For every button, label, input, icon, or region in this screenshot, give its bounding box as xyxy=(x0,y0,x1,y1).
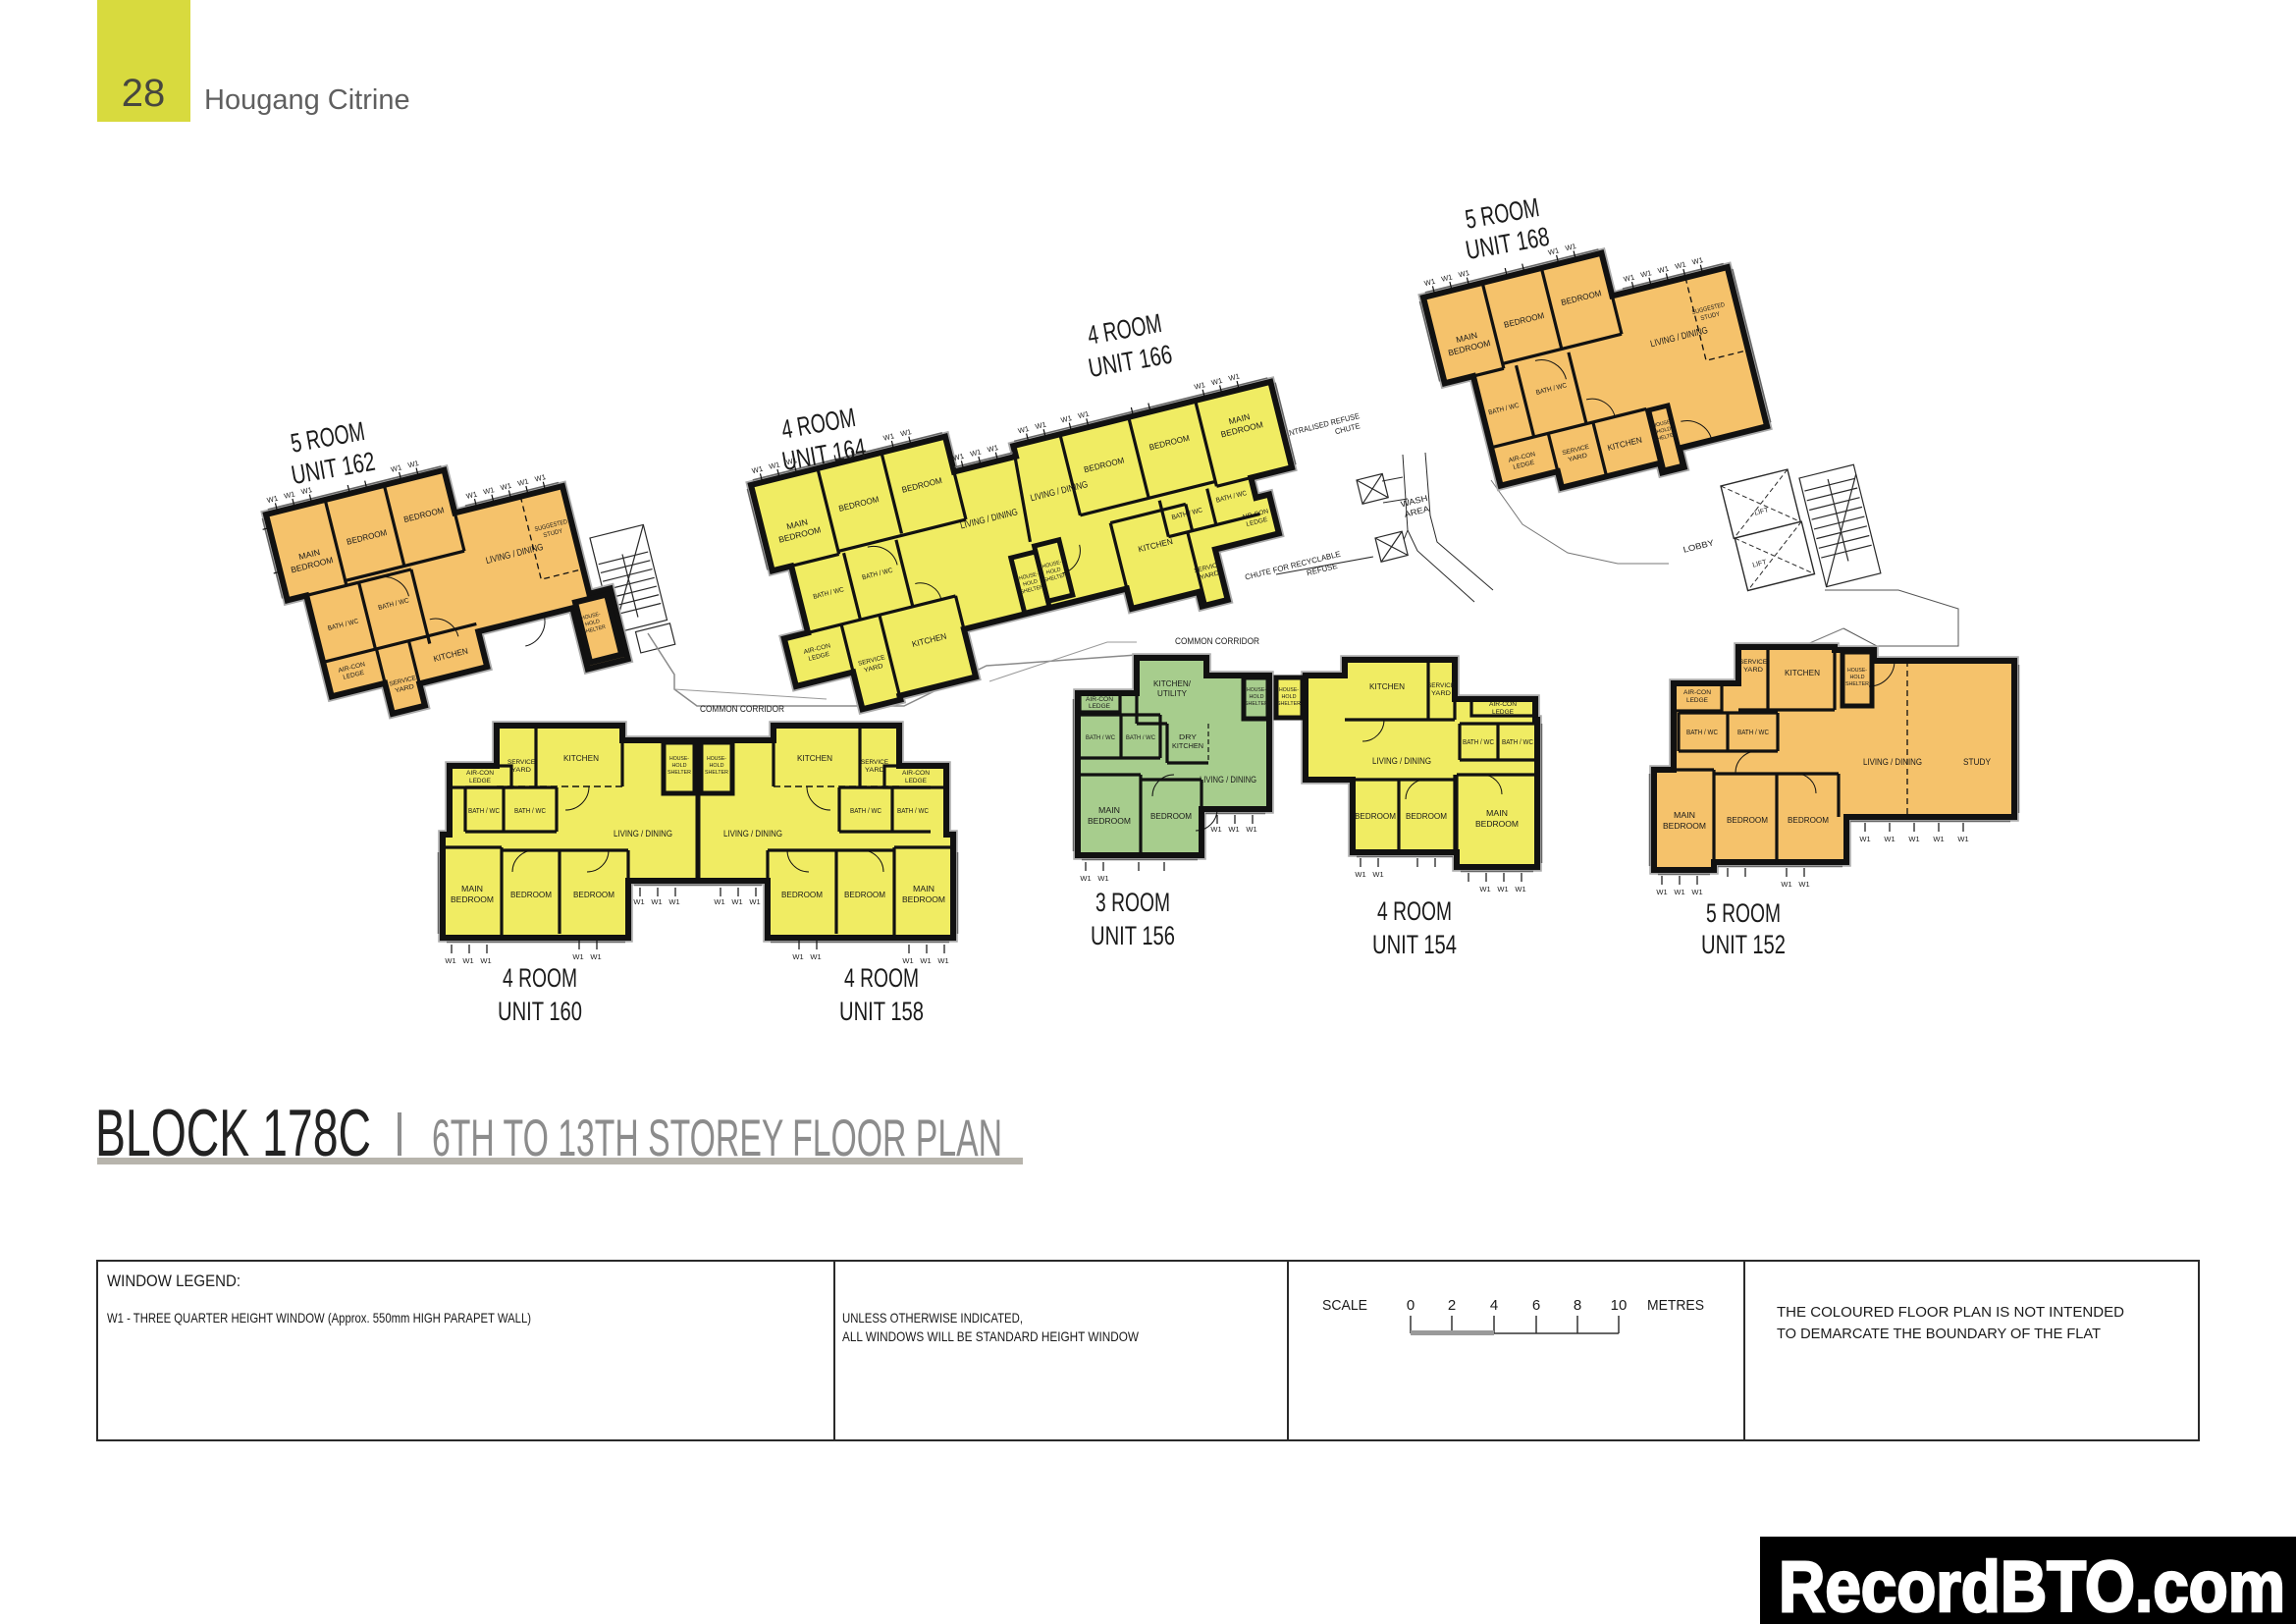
svg-text:BEDROOM: BEDROOM xyxy=(1663,821,1706,831)
svg-text:W1: W1 xyxy=(462,956,473,965)
svg-text:MAIN: MAIN xyxy=(1098,805,1120,815)
svg-text:W1: W1 xyxy=(1933,835,1944,843)
svg-text:W1: W1 xyxy=(1372,870,1383,879)
svg-text:MAIN: MAIN xyxy=(913,884,934,893)
svg-text:8: 8 xyxy=(1574,1297,1581,1314)
svg-text:BEDROOM: BEDROOM xyxy=(510,890,552,899)
svg-text:BEDROOM: BEDROOM xyxy=(573,890,614,899)
svg-text:BEDROOM: BEDROOM xyxy=(1088,816,1131,826)
svg-text:AIR-CON: AIR-CON xyxy=(1489,701,1517,708)
svg-text:W1: W1 xyxy=(714,897,724,906)
svg-text:0: 0 xyxy=(1407,1297,1415,1314)
svg-text:W1 - THREE QUARTER HEIGHT WIND: W1 - THREE QUARTER HEIGHT WINDOW (Approx… xyxy=(107,1310,531,1326)
svg-text:BATH / WC: BATH / WC xyxy=(514,808,546,815)
svg-text:W1: W1 xyxy=(1515,885,1525,893)
svg-text:BATH / WC: BATH / WC xyxy=(1463,739,1494,746)
svg-text:W1: W1 xyxy=(937,956,948,965)
svg-text:BEDROOM: BEDROOM xyxy=(781,890,823,899)
svg-text:W1: W1 xyxy=(1908,835,1919,843)
svg-text:UNIT 152: UNIT 152 xyxy=(1701,930,1786,959)
svg-text:KITCHEN: KITCHEN xyxy=(797,753,832,763)
svg-text:BATH / WC: BATH / WC xyxy=(468,808,500,815)
svg-text:UNLESS OTHERWISE INDICATED,: UNLESS OTHERWISE INDICATED, xyxy=(842,1310,1023,1326)
svg-text:YARD: YARD xyxy=(1431,690,1451,697)
svg-text:METRES: METRES xyxy=(1647,1297,1704,1314)
svg-text:W1: W1 xyxy=(731,897,742,906)
svg-text:SCALE: SCALE xyxy=(1322,1297,1367,1314)
svg-text:BEDROOM: BEDROOM xyxy=(1150,811,1192,821)
svg-text:LIVING / DINING: LIVING / DINING xyxy=(614,829,672,839)
svg-text:W1: W1 xyxy=(480,956,491,965)
svg-text:KITCHEN: KITCHEN xyxy=(1369,681,1405,691)
svg-text:RecordBTO.com: RecordBTO.com xyxy=(1779,1547,2285,1624)
svg-text:W1: W1 xyxy=(1656,888,1667,896)
svg-text:6: 6 xyxy=(1532,1297,1540,1314)
svg-text:UNIT 154: UNIT 154 xyxy=(1372,930,1457,959)
svg-text:W1: W1 xyxy=(810,952,821,961)
svg-text:LEDGE: LEDGE xyxy=(1089,704,1110,710)
svg-text:AIR-CON: AIR-CON xyxy=(466,770,494,777)
svg-text:LIVING / DINING: LIVING / DINING xyxy=(1372,756,1431,767)
svg-text:UTILITY: UTILITY xyxy=(1157,689,1188,698)
svg-text:LIVING / DINING: LIVING / DINING xyxy=(1863,757,1922,768)
svg-text:SHELTER: SHELTER xyxy=(1845,681,1869,687)
svg-text:Hougang Citrine: Hougang Citrine xyxy=(204,84,410,116)
svg-text:W1: W1 xyxy=(1497,885,1508,893)
svg-text:HOUSE-: HOUSE- xyxy=(1279,687,1299,693)
svg-text:BEDROOM: BEDROOM xyxy=(902,894,945,904)
svg-text:BEDROOM: BEDROOM xyxy=(844,890,885,899)
svg-text:LEDGE: LEDGE xyxy=(1492,709,1515,716)
svg-text:KITCHEN: KITCHEN xyxy=(1172,743,1203,750)
svg-text:AIR-CON: AIR-CON xyxy=(1683,689,1711,696)
svg-text:KITCHEN: KITCHEN xyxy=(563,753,599,763)
svg-text:SHELTER: SHELTER xyxy=(1277,701,1301,707)
svg-text:KITCHEN/: KITCHEN/ xyxy=(1153,679,1192,688)
svg-text:BEDROOM: BEDROOM xyxy=(1355,811,1396,821)
svg-text:YARD: YARD xyxy=(511,767,531,774)
svg-text:W1: W1 xyxy=(1884,835,1895,843)
svg-text:HOLD: HOLD xyxy=(1282,694,1297,700)
svg-text:BEDROOM: BEDROOM xyxy=(1727,815,1768,825)
svg-text:W1: W1 xyxy=(1674,888,1684,896)
svg-text:W1: W1 xyxy=(445,956,455,965)
svg-text:UNIT 158: UNIT 158 xyxy=(839,997,924,1026)
svg-text:BATH / WC: BATH / WC xyxy=(1686,730,1718,736)
svg-text:W1: W1 xyxy=(1228,825,1239,834)
svg-text:W1: W1 xyxy=(792,952,803,961)
svg-text:TO DEMARCATE THE BOUNDARY OF T: TO DEMARCATE THE BOUNDARY OF THE FLAT xyxy=(1777,1326,2101,1342)
svg-text:4: 4 xyxy=(1490,1297,1498,1314)
svg-text:SHELTER: SHELTER xyxy=(705,770,728,776)
svg-text:ALL WINDOWS WILL BE STANDARD H: ALL WINDOWS WILL BE STANDARD HEIGHT WIND… xyxy=(842,1328,1140,1344)
svg-text:BEDROOM: BEDROOM xyxy=(1475,819,1519,829)
svg-text:W1: W1 xyxy=(1210,825,1221,834)
svg-text:KITCHEN: KITCHEN xyxy=(1785,668,1820,677)
svg-text:UNIT 156: UNIT 156 xyxy=(1091,921,1175,950)
svg-text:UNIT 160: UNIT 160 xyxy=(498,997,582,1026)
svg-text:W1: W1 xyxy=(749,897,760,906)
svg-text:4 ROOM: 4 ROOM xyxy=(503,963,577,993)
svg-text:THE COLOURED FLOOR PLAN IS NOT: THE COLOURED FLOOR PLAN IS NOT INTENDED xyxy=(1777,1304,2124,1321)
svg-text:BATH / WC: BATH / WC xyxy=(1126,734,1155,741)
svg-text:SHELTER: SHELTER xyxy=(1245,701,1268,707)
svg-text:COMMON CORRIDOR: COMMON CORRIDOR xyxy=(700,704,784,714)
svg-text:W1: W1 xyxy=(1859,835,1870,843)
svg-text:W1: W1 xyxy=(633,897,644,906)
svg-text:BEDROOM: BEDROOM xyxy=(451,894,494,904)
svg-text:W1: W1 xyxy=(1080,874,1091,883)
svg-text:BATH / WC: BATH / WC xyxy=(1086,734,1115,741)
svg-text:YARD: YARD xyxy=(1743,667,1763,674)
svg-text:HOUSE-: HOUSE- xyxy=(1847,668,1867,674)
svg-text:DRY: DRY xyxy=(1179,734,1197,741)
svg-text:W1: W1 xyxy=(1097,874,1108,883)
svg-text:BATH / WC: BATH / WC xyxy=(1502,739,1533,746)
svg-text:4 ROOM: 4 ROOM xyxy=(1377,896,1452,926)
svg-text:LEDGE: LEDGE xyxy=(469,778,492,785)
svg-text:HOLD: HOLD xyxy=(710,763,724,769)
svg-text:LIVING / DINING: LIVING / DINING xyxy=(723,829,782,839)
svg-text:28: 28 xyxy=(122,72,166,115)
svg-text:SERVICE: SERVICE xyxy=(1739,659,1768,666)
svg-text:W1: W1 xyxy=(590,952,601,961)
svg-text:W1: W1 xyxy=(1798,880,1809,889)
svg-text:MAIN: MAIN xyxy=(461,884,483,893)
svg-text:BEDROOM: BEDROOM xyxy=(1406,811,1447,821)
svg-text:HOLD: HOLD xyxy=(1250,694,1264,700)
svg-text:YARD: YARD xyxy=(865,767,884,774)
svg-text:W1: W1 xyxy=(651,897,662,906)
svg-text:W1: W1 xyxy=(1246,825,1256,834)
svg-text:MAIN: MAIN xyxy=(1674,810,1695,820)
svg-text:MAIN: MAIN xyxy=(1486,808,1508,818)
svg-text:LEDGE: LEDGE xyxy=(1686,697,1709,704)
svg-text:W1: W1 xyxy=(920,956,931,965)
svg-text:W1: W1 xyxy=(1957,835,1968,843)
svg-text:WINDOW LEGEND:: WINDOW LEGEND: xyxy=(107,1272,240,1290)
svg-text:4 ROOM: 4 ROOM xyxy=(844,963,919,993)
svg-text:W1: W1 xyxy=(1355,870,1365,879)
svg-text:3 ROOM: 3 ROOM xyxy=(1095,888,1170,917)
svg-text:BATH / WC: BATH / WC xyxy=(897,808,929,815)
svg-text:LIVING / DINING: LIVING / DINING xyxy=(1200,775,1256,785)
svg-text:W1: W1 xyxy=(668,897,679,906)
svg-text:HOUSE-: HOUSE- xyxy=(669,756,689,762)
svg-text:HOUSE-: HOUSE- xyxy=(1247,687,1266,693)
svg-text:HOLD: HOLD xyxy=(672,763,687,769)
svg-text:BATH / WC: BATH / WC xyxy=(1737,730,1769,736)
svg-text:BATH / WC: BATH / WC xyxy=(850,808,881,815)
svg-text:W1: W1 xyxy=(572,952,583,961)
svg-text:W1: W1 xyxy=(1691,888,1702,896)
svg-text:HOUSE-: HOUSE- xyxy=(707,756,726,762)
svg-text:SERVICE: SERVICE xyxy=(1427,682,1456,689)
svg-text:AIR-CON: AIR-CON xyxy=(902,770,930,777)
svg-text:COMMON CORRIDOR: COMMON CORRIDOR xyxy=(1175,636,1259,646)
svg-text:W1: W1 xyxy=(1479,885,1490,893)
svg-text:BEDROOM: BEDROOM xyxy=(1788,815,1829,825)
svg-text:10: 10 xyxy=(1611,1297,1628,1314)
svg-text:2: 2 xyxy=(1448,1297,1456,1314)
svg-text:HOLD: HOLD xyxy=(1850,675,1865,680)
svg-text:W1: W1 xyxy=(1781,880,1791,889)
svg-text:STUDY: STUDY xyxy=(1963,757,1992,768)
svg-text:LEDGE: LEDGE xyxy=(905,778,928,785)
svg-text:SERVICE: SERVICE xyxy=(861,759,889,766)
svg-text:5 ROOM: 5 ROOM xyxy=(1706,898,1781,928)
svg-text:AIR-CON: AIR-CON xyxy=(1086,697,1113,703)
svg-text:SHELTER: SHELTER xyxy=(667,770,691,776)
svg-text:SERVICE: SERVICE xyxy=(507,759,536,766)
